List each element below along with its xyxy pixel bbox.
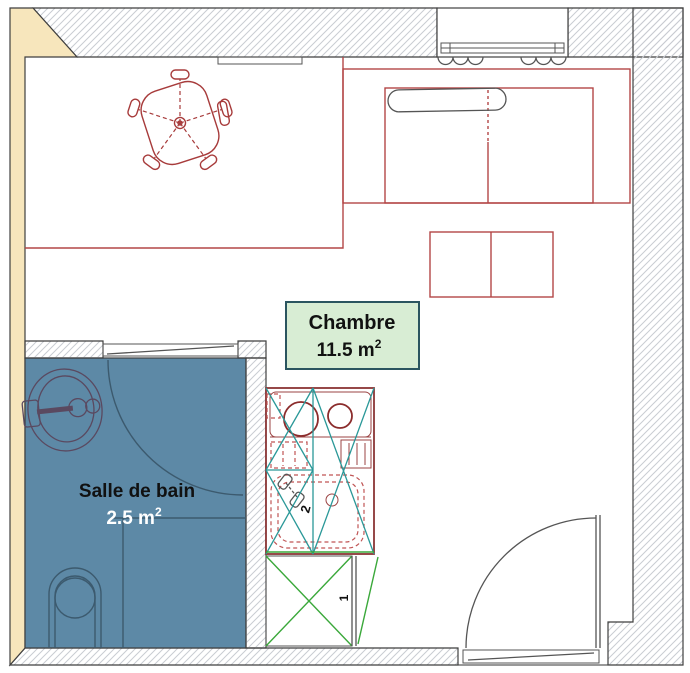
chambre-area: 11.5 m2 xyxy=(317,337,382,361)
bathroom-wall-top-left xyxy=(25,341,103,358)
closet-mark: 1 xyxy=(337,594,351,601)
bathroom-wall-top-right xyxy=(238,341,266,358)
bathroom-wall-right xyxy=(246,358,266,648)
chambre-name: Chambre xyxy=(309,312,396,334)
kitchenette-outline xyxy=(266,388,374,554)
chambre-label: Chambre 11.5 m2 xyxy=(286,302,419,369)
kitchenette-icon: 2 xyxy=(266,388,374,554)
bathroom-floor xyxy=(25,358,246,648)
bathroom: Salle de bain 2.5 m2 xyxy=(19,341,266,648)
bottom-wall-left xyxy=(10,648,458,665)
floor-plan: Chambre 11.5 m2 Salle de bain 2.5 m2 xyxy=(0,0,690,673)
bathroom-name: Salle de bain xyxy=(79,481,195,502)
top-wall-left xyxy=(33,8,437,57)
bathroom-area: 2.5 m2 xyxy=(106,505,162,529)
window-recess xyxy=(437,8,568,57)
